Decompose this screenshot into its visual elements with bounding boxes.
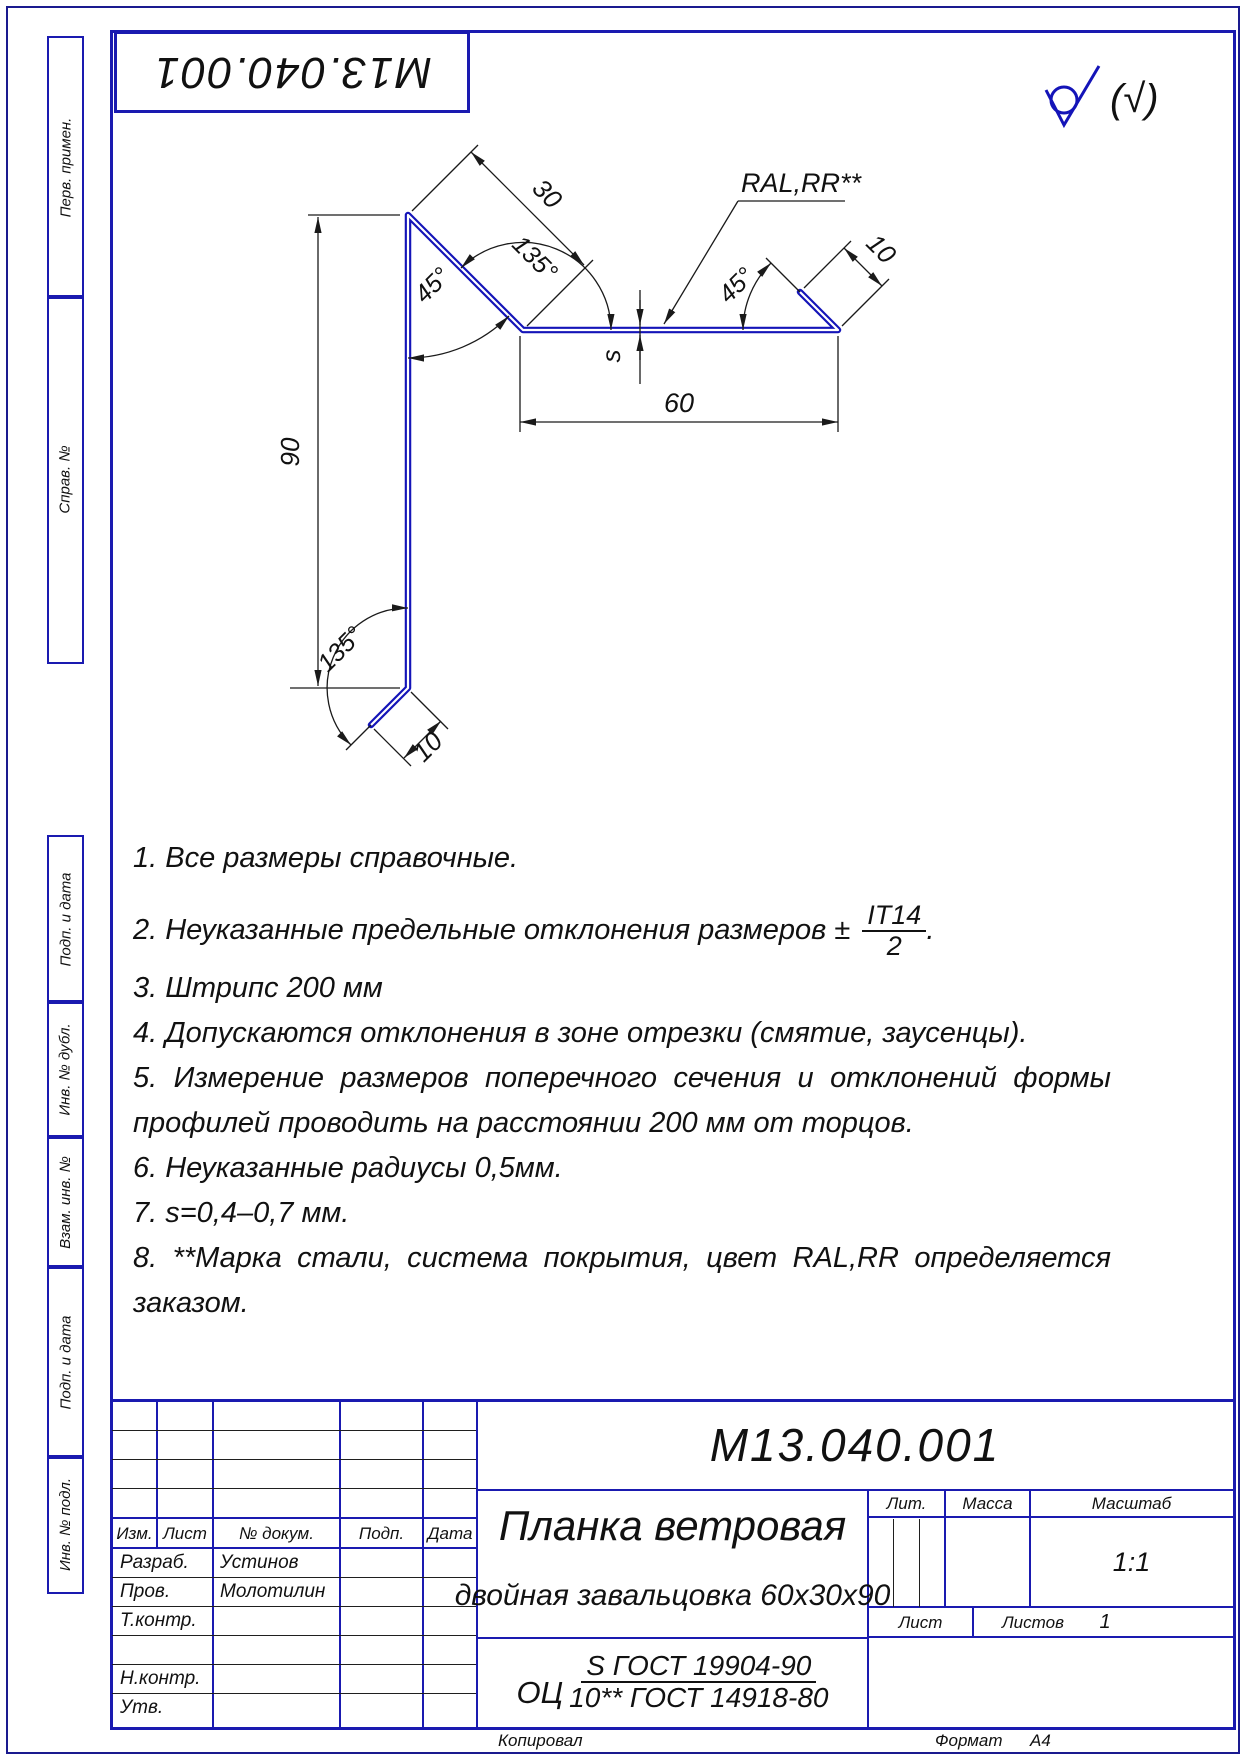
tb-part-subname: двойная завальцовка 60х30х90 (477, 1560, 868, 1632)
grid-line (893, 1519, 894, 1607)
tb-header-podp: Подп. (340, 1519, 423, 1548)
signature-role: Разраб. (120, 1548, 189, 1577)
roughness-rest-note: (√) (1110, 77, 1159, 121)
tb-header-massa: Масса (945, 1491, 1030, 1517)
note-text: 4. Допускаются отклонения в зоне отрезки… (133, 1017, 1027, 1049)
fraction-tail: . (926, 914, 934, 946)
tb-part-name: Планка ветровая (477, 1492, 868, 1560)
note-text: 8. **Марка стали, система покрытия, цвет… (133, 1242, 1111, 1274)
fraction-denominator: 2 (887, 932, 902, 961)
grid-line (112, 1430, 476, 1431)
signature-name: Молотилин (220, 1577, 325, 1606)
note-text: 5. Измерение размеров поперечного сечени… (133, 1062, 1111, 1094)
tb-header-sheet: Лист (868, 1609, 973, 1636)
note-line: профилей проводить на расстоянии 200 мм … (133, 1101, 1111, 1146)
signature-row: Т.контр. (112, 1606, 477, 1635)
tb-designation: М13.040.001 (477, 1402, 1233, 1488)
tb-header-izm: Изм. (112, 1519, 157, 1548)
tb-header-data: Дата (423, 1519, 477, 1548)
coating-label: RAL,RR** (741, 168, 863, 198)
roughness-symbol-icon (1046, 66, 1099, 125)
signature-row (112, 1635, 477, 1664)
tb-sheets-value: 1 (1075, 1609, 1135, 1636)
signature-row: Н.контр. (112, 1664, 477, 1693)
dim-label-45-right: 45° (713, 262, 760, 309)
tb-material: ОЦ S ГОСТ 19904-90 10** ГОСТ 14918-80 (477, 1639, 868, 1725)
tb-header-lit: Лит. (868, 1491, 945, 1517)
grid-line (919, 1519, 920, 1607)
tb-header-ndoc: № докум. (213, 1519, 340, 1548)
grid-line (112, 1459, 476, 1460)
tolerance-fraction: IT142 (862, 901, 926, 961)
grid-line (112, 1488, 476, 1489)
coating-leader: RAL,RR** (664, 168, 863, 324)
dim-flange-30: 30 (412, 145, 593, 326)
dim-label-10-right: 10 (861, 228, 903, 270)
note-text: 6. Неуказанные радиусы 0,5мм. (133, 1152, 563, 1184)
tb-header-masshtab: Масштаб (1030, 1491, 1233, 1517)
material-fraction: S ГОСТ 19904-90 10** ГОСТ 14918-80 (569, 1651, 828, 1713)
dim-thickness-s: s (596, 290, 640, 384)
dim-hem-10-bottom: 10 (374, 692, 449, 767)
tb-scale-value: 1:1 (1030, 1517, 1233, 1607)
material-denominator: 10** ГОСТ 14918-80 (569, 1683, 828, 1713)
footer-format-label: Формат (935, 1731, 1003, 1751)
dim-label-30: 30 (527, 173, 569, 215)
footer-format-value: А4 (1030, 1731, 1051, 1751)
signature-row: Разраб.Устинов (112, 1548, 477, 1577)
dim-label-s: s (596, 350, 626, 363)
tb-header-list: Лист (157, 1519, 213, 1548)
note-text: 3. Штрипс 200 мм (133, 972, 383, 1004)
dim-label-135-top: 135° (506, 230, 562, 286)
signature-role: Н.контр. (120, 1664, 200, 1693)
dim-label-60: 60 (664, 388, 694, 418)
drawing-sheet: М13.040.001 Перв. примен.Справ. №Подп. и… (0, 0, 1244, 1758)
dim-height-90: 90 (275, 215, 400, 688)
note-line: 4. Допускаются отклонения в зоне отрезки… (133, 1011, 1111, 1056)
note-line: 8. **Марка стали, система покрытия, цвет… (133, 1236, 1111, 1281)
dim-angle-135-bottom: 135° (312, 608, 408, 750)
dim-label-10-bottom: 10 (407, 725, 449, 767)
note-text: 2. Неуказанные предельные отклонения раз… (133, 914, 850, 946)
dim-label-135-bottom: 135° (312, 621, 368, 677)
fraction-numerator: IT14 (862, 901, 926, 932)
dim-angle-45-right: 45° (713, 258, 800, 330)
dim-angle-45-left: 45° (408, 262, 509, 358)
note-line: 7. s=0,4–0,7 мм. (133, 1191, 1111, 1236)
dim-angle-135-top: 135° (461, 230, 611, 330)
signature-name: Устинов (220, 1548, 299, 1577)
note-text: профилей проводить на расстоянии 200 мм … (133, 1107, 914, 1139)
signature-row: Пров.Молотилин (112, 1577, 477, 1606)
note-text: 7. s=0,4–0,7 мм. (133, 1197, 349, 1229)
material-numerator: S ГОСТ 19904-90 (581, 1651, 816, 1683)
note-text: заказом. (133, 1287, 249, 1319)
dim-width-60: 60 (520, 336, 838, 432)
signature-role: Пров. (120, 1577, 170, 1606)
signature-row: Утв. (112, 1693, 477, 1722)
technical-notes: 1. Все размеры справочные.2. Неуказанные… (133, 836, 1111, 1326)
note-line: 3. Штрипс 200 мм (133, 966, 1111, 1011)
dim-label-45-left: 45° (409, 262, 456, 309)
footer-copied: Копировал (498, 1731, 583, 1751)
note-line: 2. Неуказанные предельные отклонения раз… (133, 901, 1111, 946)
note-line: 1. Все размеры справочные. (133, 836, 1111, 881)
signature-role: Т.контр. (120, 1606, 197, 1635)
grid-line (868, 1636, 1233, 1638)
dim-label-90: 90 (275, 437, 305, 466)
signature-role: Утв. (120, 1693, 163, 1722)
note-line: 6. Неуказанные радиусы 0,5мм. (133, 1146, 1111, 1191)
material-prefix: ОЦ (517, 1675, 564, 1711)
note-line: 5. Измерение размеров поперечного сечени… (133, 1056, 1111, 1101)
note-text: 1. Все размеры справочные. (133, 842, 518, 874)
note-line: заказом. (133, 1281, 1111, 1326)
